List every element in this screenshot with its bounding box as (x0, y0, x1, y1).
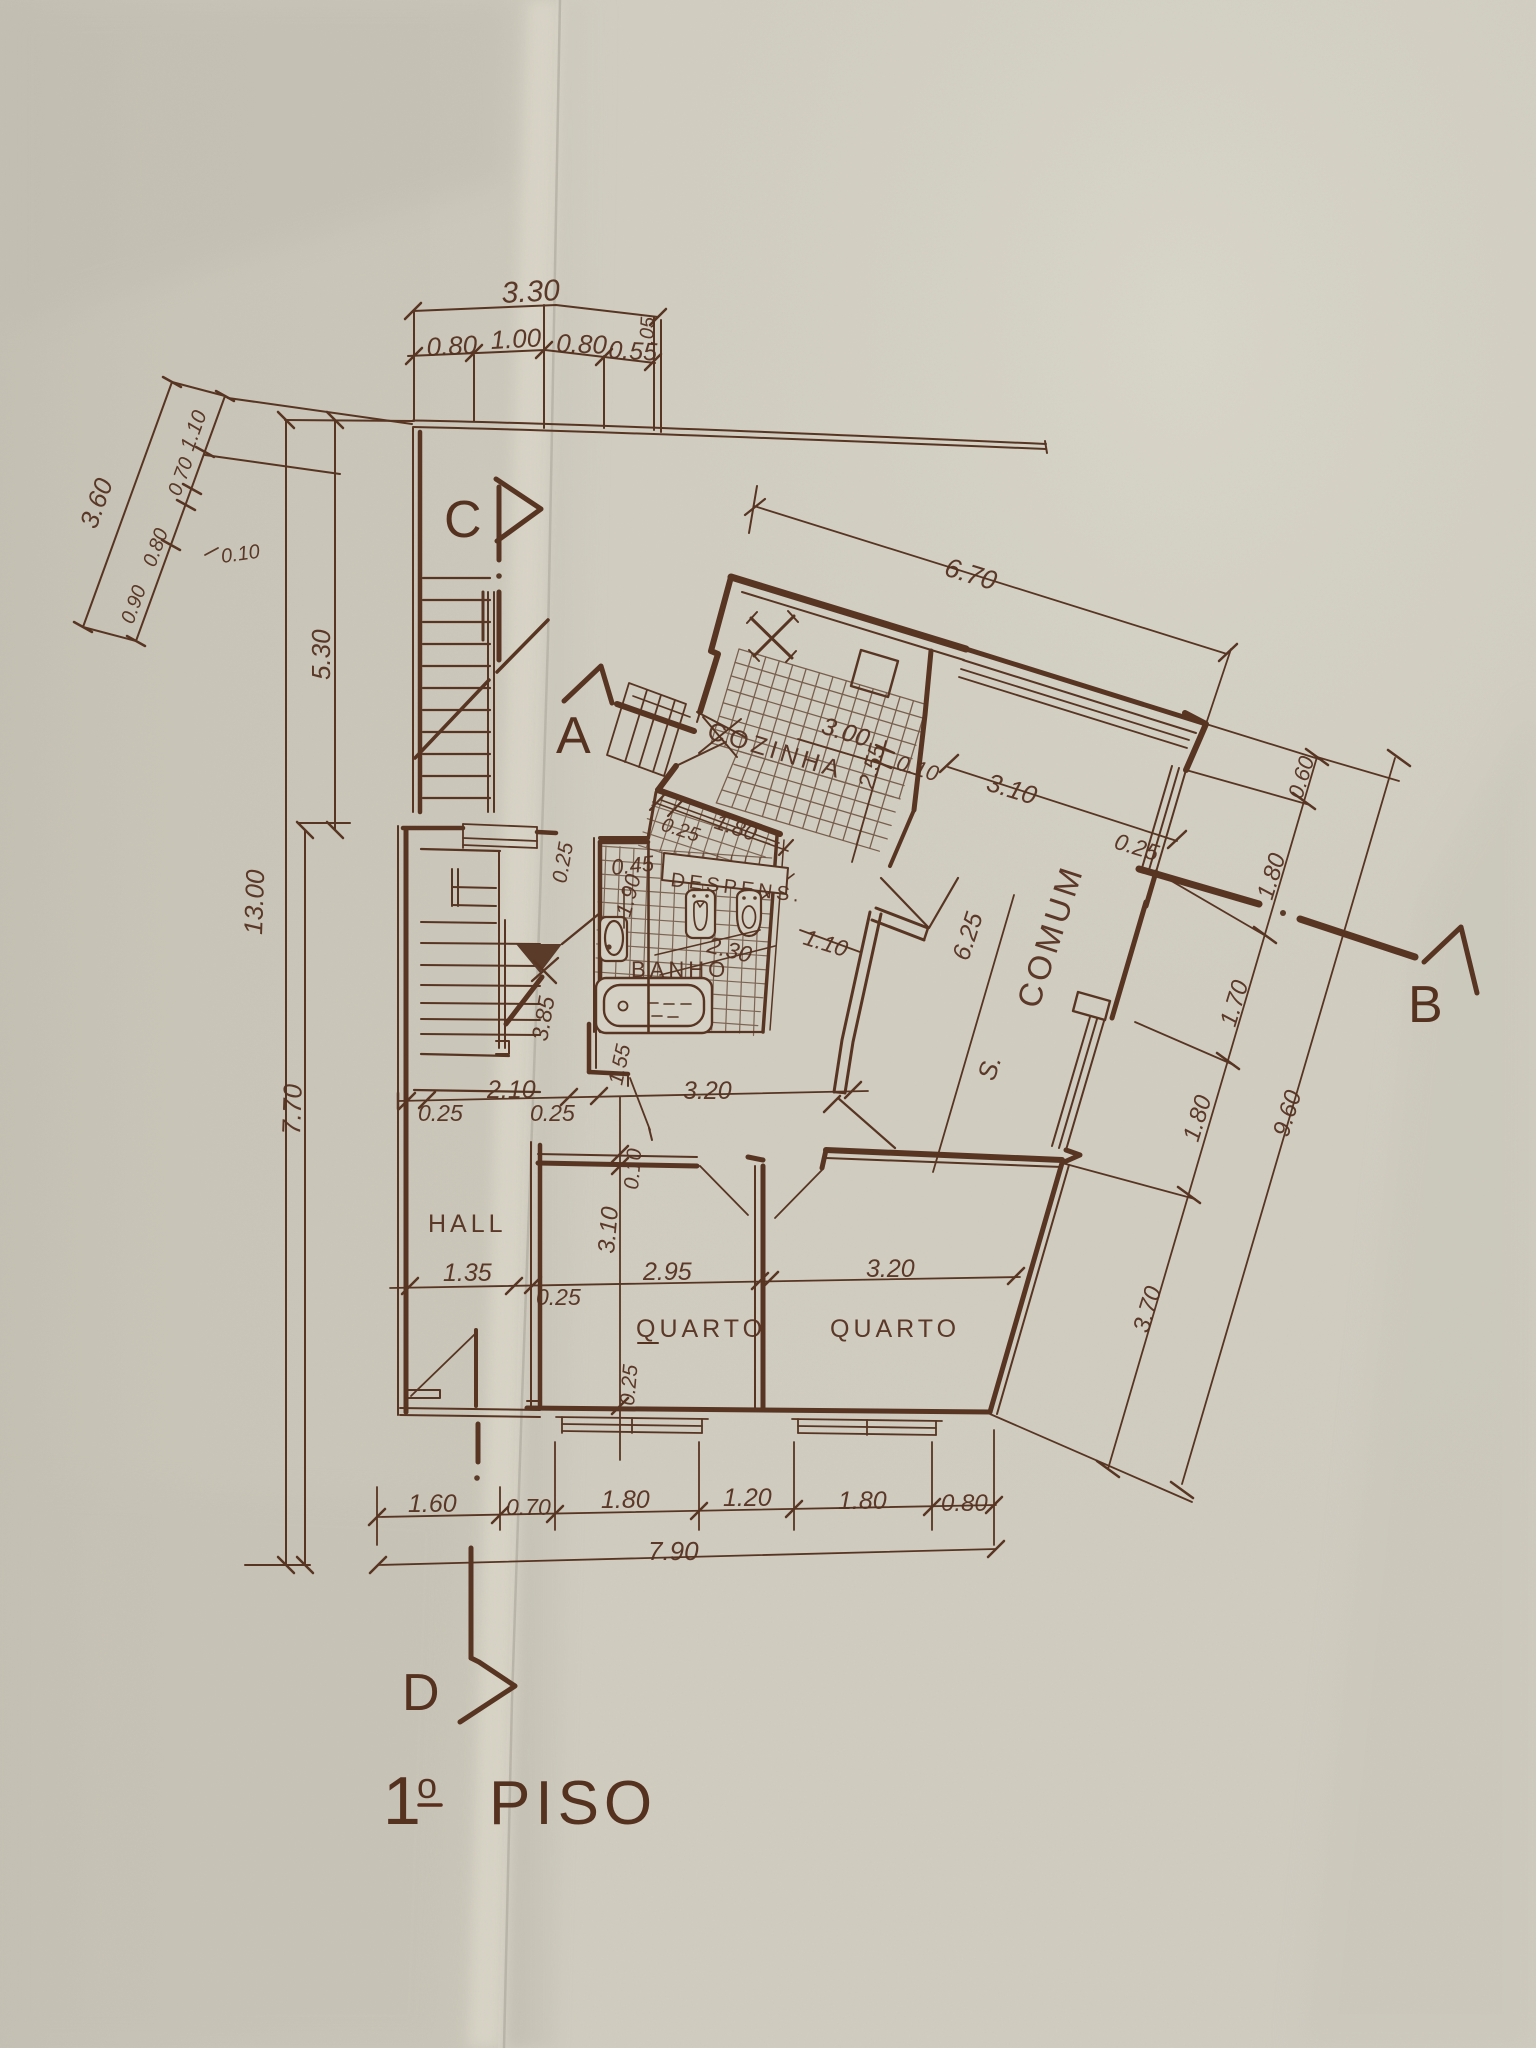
svg-text:0.25: 0.25 (616, 1363, 643, 1406)
svg-text:5.30: 5.30 (306, 629, 336, 680)
svg-text:0.70: 0.70 (506, 1494, 551, 1520)
svg-text:3.30: 3.30 (501, 274, 561, 310)
svg-text:1.80: 1.80 (838, 1487, 887, 1515)
svg-text:QUARTO: QUARTO (830, 1315, 960, 1343)
svg-text:PISO: PISO (489, 1769, 657, 1838)
svg-text:A: A (556, 707, 591, 765)
svg-text:0.80: 0.80 (941, 1490, 988, 1517)
svg-text:0.25: 0.25 (418, 1100, 463, 1126)
svg-text:1: 1 (383, 1763, 421, 1839)
svg-text:QUARTO: QUARTO (636, 1315, 766, 1343)
svg-text:0.80: 0.80 (556, 328, 608, 360)
svg-text:C: C (444, 491, 482, 549)
svg-text:3.20: 3.20 (866, 1255, 915, 1283)
svg-text:HALL: HALL (428, 1210, 507, 1238)
svg-text:1.00: 1.00 (490, 322, 543, 355)
svg-text:B: B (1408, 976, 1443, 1034)
svg-text:3.10: 3.10 (593, 1205, 624, 1255)
svg-text:2.95: 2.95 (642, 1258, 692, 1286)
svg-text:1.20: 1.20 (723, 1484, 772, 1512)
svg-text:0.10: 0.10 (620, 1147, 647, 1190)
svg-text:2.10: 2.10 (486, 1076, 536, 1104)
svg-text:1.80: 1.80 (601, 1486, 650, 1514)
svg-text:7.90: 7.90 (648, 1536, 699, 1566)
svg-text:3.20: 3.20 (683, 1077, 732, 1105)
svg-text:o: o (417, 1765, 437, 1806)
svg-text:1.35: 1.35 (443, 1259, 492, 1287)
svg-text:0.25: 0.25 (536, 1284, 581, 1310)
svg-text:7.70: 7.70 (276, 1083, 308, 1135)
svg-text:13.00: 13.00 (238, 869, 270, 936)
svg-text:.05: .05 (636, 315, 659, 345)
svg-text:D: D (402, 1664, 440, 1722)
svg-text:1.60: 1.60 (408, 1490, 457, 1518)
svg-text:0.25: 0.25 (530, 1100, 575, 1126)
svg-text:0.80: 0.80 (426, 329, 479, 362)
